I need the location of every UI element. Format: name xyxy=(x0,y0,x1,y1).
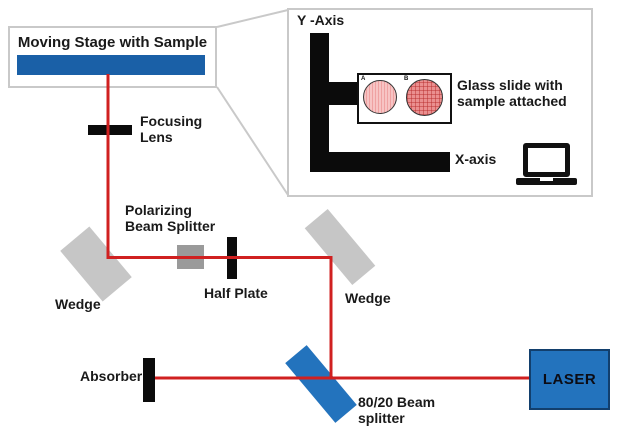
x-axis-bar xyxy=(310,152,450,172)
polarizing-beam-splitter-label: Polarizing Beam Splitter xyxy=(125,203,215,234)
stage-detail-inset: Y -Axis X-axis A B Glass slide with samp… xyxy=(287,8,593,197)
callout-line-bottom xyxy=(217,87,288,195)
laptop-screen xyxy=(523,143,570,177)
focusing-lens-bar xyxy=(88,125,132,135)
half-plate-label: Half Plate xyxy=(204,286,268,302)
absorber-label: Absorber xyxy=(80,369,142,385)
wedge-right xyxy=(305,209,376,285)
sample-b-circle xyxy=(406,79,443,116)
y-axis-label: Y -Axis xyxy=(297,13,344,29)
absorber-bar xyxy=(143,358,155,402)
wedge-right-label: Wedge xyxy=(345,291,391,307)
moving-stage-title: Moving Stage with Sample xyxy=(10,28,215,51)
polarizing-beam-splitter xyxy=(177,245,204,269)
moving-stage-box: Moving Stage with Sample xyxy=(8,26,217,88)
wedge-left-label: Wedge xyxy=(55,297,101,313)
half-plate-bar xyxy=(227,237,237,279)
optical-setup-diagram: Moving Stage with Sample Y -Axis X-axis … xyxy=(0,0,639,439)
laptop-notch xyxy=(540,178,553,181)
glass-slide-label: Glass slide with sample attached xyxy=(457,78,587,109)
callout-line-top xyxy=(217,10,288,27)
beam-splitter-8020 xyxy=(285,345,357,423)
beam-splitter-8020-label: 80/20 Beam splitter xyxy=(358,395,435,426)
wedge-left xyxy=(60,227,132,302)
focusing-lens-label: Focusing Lens xyxy=(140,114,202,145)
sample-holder-arm xyxy=(329,82,359,105)
laser-label: LASER xyxy=(543,371,596,388)
laptop-base xyxy=(516,178,577,185)
laser-box: LASER xyxy=(529,349,610,410)
stage-platform-bar xyxy=(17,55,205,75)
x-axis-label: X-axis xyxy=(455,152,496,168)
sample-a-circle xyxy=(363,80,397,114)
glass-slide: A B xyxy=(357,73,452,124)
sample-a-label: A xyxy=(361,76,365,82)
sample-b-label: B xyxy=(404,76,408,82)
